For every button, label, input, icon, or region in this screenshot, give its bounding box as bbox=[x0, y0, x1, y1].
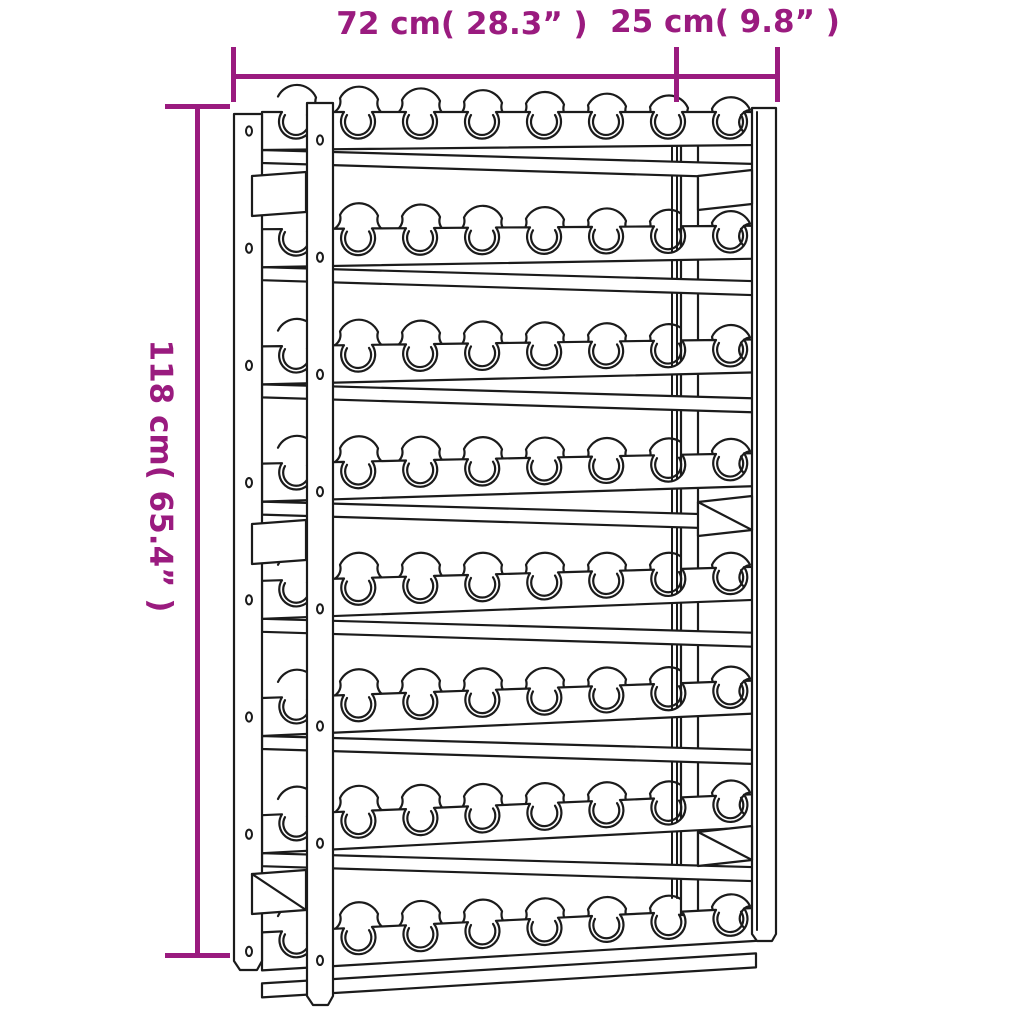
width-dimension-label: 72 cm( 28.3” ) bbox=[336, 9, 587, 40]
height-dimension-line bbox=[195, 106, 200, 957]
height-dimension-tick-bottom bbox=[165, 953, 230, 958]
width-dimension-line bbox=[233, 74, 779, 79]
depth-dimension-tick-left bbox=[674, 47, 679, 102]
height-dimension-tick-top bbox=[165, 104, 230, 109]
height-dimension-label: 118 cm( 65.4” ) bbox=[145, 340, 176, 613]
product-dimension-diagram: 72 cm( 28.3” ) 25 cm( 9.8” ) 118 cm( 65.… bbox=[0, 0, 1024, 1024]
depth-dimension-label: 25 cm( 9.8” ) bbox=[610, 7, 840, 38]
depth-dimension-tick-right bbox=[775, 47, 780, 102]
width-dimension-tick-left bbox=[231, 47, 236, 102]
